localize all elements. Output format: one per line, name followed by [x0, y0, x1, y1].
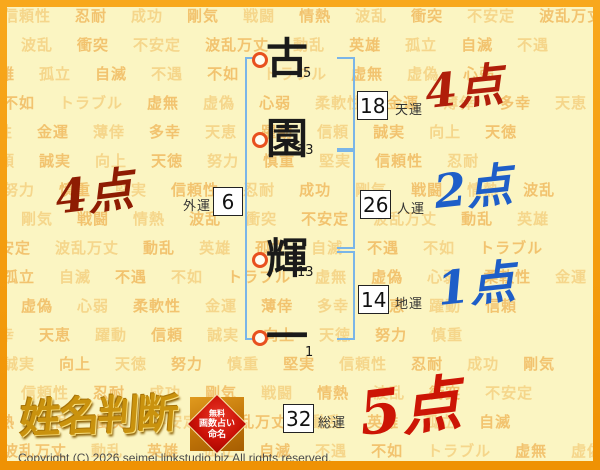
watermark-word: 不遇	[367, 240, 399, 257]
watermark-word: 戦闘	[261, 385, 293, 402]
watermark-word: 柔軟性	[7, 124, 13, 141]
watermark-word: トラブル	[59, 95, 123, 112]
watermark-word: 波乱万丈	[55, 240, 119, 257]
watermark-word: 波乱万丈	[539, 8, 593, 25]
watermark-word: 情熱	[299, 8, 331, 25]
watermark-word: 虚偽	[203, 95, 235, 112]
watermark-word: 虚無	[515, 443, 547, 460]
watermark-word: 不如	[207, 66, 239, 83]
watermark-word: 忍耐	[243, 182, 275, 199]
chiun-value-box: 14	[358, 285, 389, 314]
watermark-word: 剛気	[523, 356, 555, 373]
watermark-word: 忍耐	[75, 8, 107, 25]
watermark-word: 信頼性	[339, 356, 387, 373]
watermark-word: 剛気	[187, 8, 219, 25]
jinun-value-box: 26	[360, 190, 391, 219]
watermark-word: 薄倖	[93, 124, 125, 141]
tenun-label: 天運	[395, 99, 423, 118]
seimei-handan-logo[interactable]: 姓名判断	[18, 393, 177, 439]
watermark-word: 信頼性	[7, 8, 51, 25]
watermark-word: 虚無	[315, 269, 347, 286]
watermark-row: 薄倖多幸天恵躍動信頼誠実向上天徳努力慎重	[7, 324, 487, 345]
watermark-word: 天恵	[555, 95, 587, 112]
watermark-word: 虚無	[147, 95, 179, 112]
page-frame: 信頼性忍耐成功剛気戦闘情熱波乱衝突不安定波乱万丈情熱波乱衝突不安定波乱万丈動乱英…	[0, 0, 600, 470]
copyright-text: Copyright (C) 2026 seimei.linkstudio.biz…	[18, 451, 331, 461]
watermark-word: 躍動	[95, 327, 127, 344]
name-character-4: 一	[264, 316, 310, 358]
watermark-word: 多幸	[7, 327, 15, 344]
stroke-count-1: 5	[303, 66, 311, 81]
watermark-word: 柔軟性	[315, 95, 363, 112]
watermark-word: 金運	[37, 124, 69, 141]
watermark-word: 虚無	[351, 66, 383, 83]
watermark-word: 堅実	[319, 153, 351, 170]
watermark-word: 多幸	[149, 124, 181, 141]
watermark-word: 慎重	[431, 327, 463, 344]
watermark-word: 不遇	[115, 269, 147, 286]
tenun-value-box: 18	[357, 91, 388, 120]
watermark-word: 天恵	[205, 124, 237, 141]
badge-line-1: 無料	[209, 409, 225, 418]
watermark-word: トラブル	[427, 443, 491, 460]
watermark-word: 成功	[131, 8, 163, 25]
watermark-word: 孤立	[39, 66, 71, 83]
watermark-word: 不安定	[301, 211, 349, 228]
watermark-word: 努力	[207, 153, 239, 170]
watermark-word: 英雄	[517, 211, 549, 228]
watermark-word: 戦闘	[243, 8, 275, 25]
stroke-count-3: 13	[297, 265, 314, 280]
watermark-word: 自滅	[311, 240, 343, 257]
watermark-word: 自滅	[461, 37, 493, 54]
watermark-word: 情熱	[317, 385, 349, 402]
watermark-word: 英雄	[199, 240, 231, 257]
watermark-word: 情熱	[133, 211, 165, 228]
watermark-word: 金運	[205, 298, 237, 315]
watermark-word: 信頼	[317, 124, 349, 141]
gaiun-label: 外運	[183, 195, 211, 214]
watermark-word: 誠実	[373, 124, 405, 141]
watermark-word: 不遇	[517, 37, 549, 54]
watermark-word: 動乱	[143, 240, 175, 257]
soun-value-box: 32	[283, 404, 314, 433]
watermark-word: 不如	[423, 240, 455, 257]
watermark-word: 天恵	[39, 327, 71, 344]
jinun-bracket	[337, 150, 355, 249]
result-canvas: 信頼性忍耐成功剛気戦闘情熱波乱衝突不安定波乱万丈情熱波乱衝突不安定波乱万丈動乱英…	[7, 7, 593, 461]
watermark-word: 自滅	[479, 414, 511, 431]
soun-label: 総運	[318, 412, 346, 431]
watermark-word: 努力	[171, 356, 203, 373]
watermark-word: 天徳	[115, 356, 147, 373]
watermark-word: 波乱	[21, 37, 53, 54]
watermark-word: 向上	[429, 124, 461, 141]
watermark-word: 信頼性	[375, 153, 423, 170]
watermark-word: 信頼	[7, 153, 15, 170]
watermark-word: 自滅	[95, 66, 127, 83]
gaiun-value-box: 6	[213, 187, 243, 216]
watermark-word: 不安定	[485, 385, 533, 402]
watermark-word: 信頼	[151, 327, 183, 344]
watermark-word: 剛気	[21, 211, 53, 228]
watermark-word: 心弱	[77, 298, 109, 315]
watermark-word: 天徳	[485, 124, 517, 141]
watermark-word: 衝突	[411, 8, 443, 25]
watermark-word: 孤立	[7, 269, 35, 286]
watermark-word: 柔軟性	[133, 298, 181, 315]
gaiun-bracket	[245, 57, 259, 340]
stroke-count-4: 1	[305, 345, 313, 360]
watermark-word: 不如	[171, 269, 203, 286]
watermark-word: 自滅	[59, 269, 91, 286]
watermark-word: 成功	[299, 182, 331, 199]
watermark-word: 誠実	[207, 327, 239, 344]
tenun-bracket	[337, 57, 355, 150]
watermark-word: 心弱	[259, 95, 291, 112]
watermark-word: 孤立	[405, 37, 437, 54]
soun-score: 5点	[356, 373, 464, 445]
watermark-word: 衝突	[77, 37, 109, 54]
watermark-word: 天徳	[151, 153, 183, 170]
watermark-word: 虚偽	[21, 298, 53, 315]
badge-line-2: 画数占い	[199, 418, 235, 428]
watermark-word: 不安定	[7, 240, 31, 257]
chiun-label: 地運	[395, 293, 423, 312]
watermark-word: 虚偽	[571, 443, 593, 460]
badge-line-3: 命名	[208, 429, 226, 439]
badge-text: 無料 画数占い 命名	[190, 397, 244, 451]
watermark-word: 英雄	[349, 37, 381, 54]
watermark-word: 英雄	[7, 66, 15, 83]
stroke-count-2: 13	[297, 143, 314, 158]
watermark-word: 不安定	[467, 8, 515, 25]
jinun-label: 人運	[397, 198, 425, 217]
watermark-word: 成功	[467, 356, 499, 373]
watermark-word: 努力	[375, 327, 407, 344]
chiun-bracket	[337, 251, 355, 340]
watermark-word: 情熱	[7, 414, 15, 431]
watermark-word: 不如	[7, 95, 35, 112]
jinun-score: 2点	[432, 161, 514, 215]
watermark-word: 不遇	[151, 66, 183, 83]
watermark-word: 衝突	[245, 211, 277, 228]
chiun-score: 1点	[435, 258, 517, 312]
watermark-word: 虚偽	[371, 269, 403, 286]
gaiun-score: 4点	[52, 165, 135, 220]
watermark-word: 多幸	[317, 298, 349, 315]
watermark-word: 波乱	[523, 182, 555, 199]
watermark-word: 天徳	[319, 327, 351, 344]
watermark-word: 誠実	[7, 356, 35, 373]
watermark-word: 努力	[7, 182, 35, 199]
watermark-word: 金運	[555, 269, 587, 286]
watermark-word: 不安定	[133, 37, 181, 54]
watermark-row: 信頼性忍耐成功剛気戦闘情熱波乱衝突不安定波乱万丈	[7, 7, 593, 26]
watermark-word: 慎重	[227, 356, 259, 373]
watermark-word: 波乱	[355, 8, 387, 25]
watermark-word: 誠実	[39, 153, 71, 170]
tenun-score: 4点	[423, 61, 505, 115]
kakusu-uranai-badge[interactable]: 無料 画数占い 命名	[190, 397, 244, 451]
watermark-word: 向上	[59, 356, 91, 373]
